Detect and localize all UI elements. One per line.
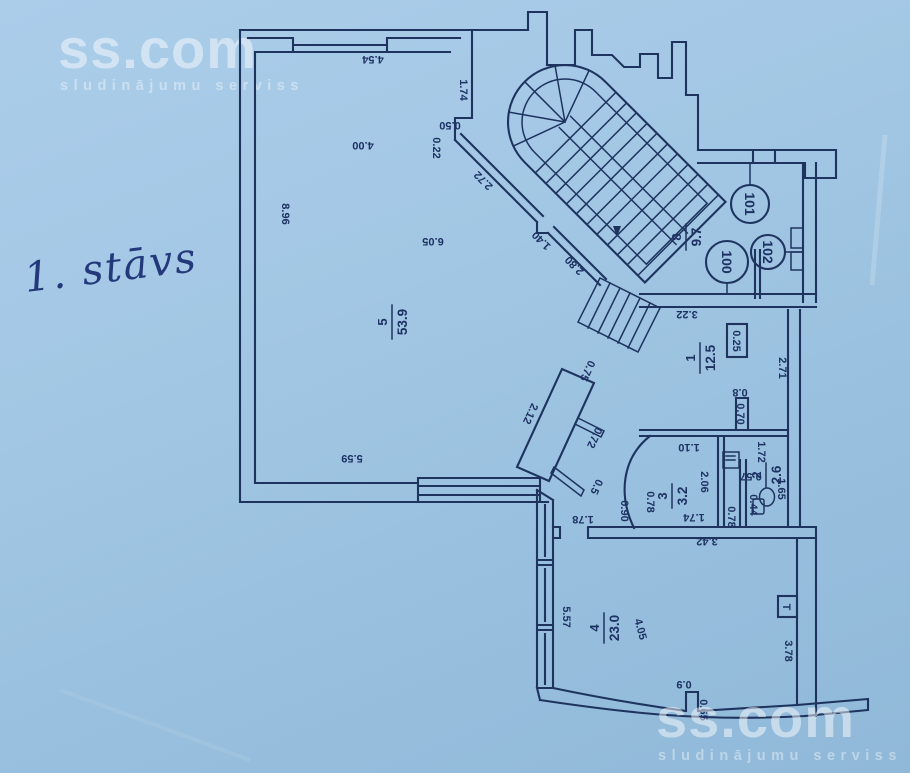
dim-label: 0.72 <box>584 425 604 449</box>
watermark-top-left: ss.com sludinājumu serviss <box>58 17 304 94</box>
dim-label: 1.78 <box>572 513 593 525</box>
dim-label: 0.90 <box>618 500 630 521</box>
svg-text:53.9: 53.9 <box>395 309 410 335</box>
dim-label: 5.57 <box>560 606 572 627</box>
dim-label: 2.72 <box>472 168 496 192</box>
dim-label: 0.5 <box>587 477 604 496</box>
door-number: 102 <box>760 240 776 264</box>
room-labels: 553.9 112.5 33.2 22.6 423.0 89.7 <box>375 224 784 643</box>
dim-label: 1.74 <box>682 511 704 523</box>
ss-tagline: sludinājumu serviss <box>60 78 304 94</box>
dim-label: 0.44 <box>747 494 759 516</box>
svg-text:9.7: 9.7 <box>689 228 704 247</box>
dim-label: 1.74 <box>457 79 469 101</box>
dim-label: 0.70 <box>734 403 746 424</box>
dim-label: 3.42 <box>696 535 717 547</box>
svg-text:3: 3 <box>655 492 670 499</box>
dim-label: 3.78 <box>782 640 794 661</box>
dim-label: 1.40 <box>530 228 554 252</box>
ss-tagline: sludinājumu serviss <box>658 748 902 764</box>
dim-label: 1.65 <box>775 478 787 499</box>
walls <box>240 12 868 718</box>
svg-text:12.5: 12.5 <box>703 344 718 371</box>
dim-label: 4.54 <box>361 53 383 65</box>
landing-steps <box>578 278 660 352</box>
door-number-badges: 101 100 102 <box>706 185 785 283</box>
dim-label: 1.10 <box>678 441 699 453</box>
room-label-4: 423.0 <box>587 613 622 643</box>
dim-label: 0.75 <box>577 358 597 382</box>
ss-logo: ss.com <box>58 17 257 80</box>
svg-text:8: 8 <box>669 233 684 240</box>
scanned-floor-plan-photo: ss.com sludinājumu serviss <box>0 0 910 773</box>
ss-logo: ss.com <box>656 686 855 749</box>
dim-label: 2.71 <box>776 357 788 378</box>
svg-text:0.25: 0.25 <box>730 330 742 351</box>
dim-label: 3.22 <box>676 308 697 320</box>
svg-text:23.0: 23.0 <box>607 615 622 641</box>
svg-text:1: 1 <box>683 354 698 361</box>
watermark-bottom-right: ss.com sludinājumu serviss <box>656 686 902 764</box>
dim-label: 6.05 <box>422 235 443 247</box>
dim-label: 0.78 <box>725 506 737 527</box>
t-marker: T <box>780 604 792 611</box>
wall-niche <box>791 252 803 270</box>
dim-label: 8.96 <box>279 203 291 224</box>
dim-label: 4.05 <box>631 617 648 641</box>
svg-text:3.2: 3.2 <box>675 487 690 506</box>
dim-label: 0.22 <box>430 137 442 158</box>
svg-text:5: 5 <box>375 318 390 325</box>
dim-label: 2.06 <box>698 471 710 492</box>
room-label-1: 112.5 <box>683 343 718 373</box>
floor-plan-svg: ss.com sludinājumu serviss <box>0 0 910 773</box>
dim-label: 1.72 <box>755 441 767 462</box>
room-label-3: 33.2 <box>655 484 690 508</box>
handwritten-floor-note: 1. stāvs <box>21 233 200 302</box>
svg-text:4: 4 <box>587 624 602 632</box>
dim-label: 4.00 <box>352 139 373 151</box>
svg-text:T: T <box>780 604 792 611</box>
dim-label: 0.50 <box>439 119 460 131</box>
dim-label: 0.8 <box>732 386 747 398</box>
dim-label: 0.57 <box>740 470 761 482</box>
wall-niche <box>791 228 803 248</box>
room-label-8: 89.7 <box>669 224 704 250</box>
door-number: 101 <box>742 192 758 216</box>
shaft-label: 0.25 <box>727 324 747 357</box>
dim-label: 0.78 <box>644 491 656 512</box>
room-label-5: 553.9 <box>375 305 410 339</box>
dim-label: 5.59 <box>341 452 362 464</box>
door-number: 100 <box>719 250 735 274</box>
